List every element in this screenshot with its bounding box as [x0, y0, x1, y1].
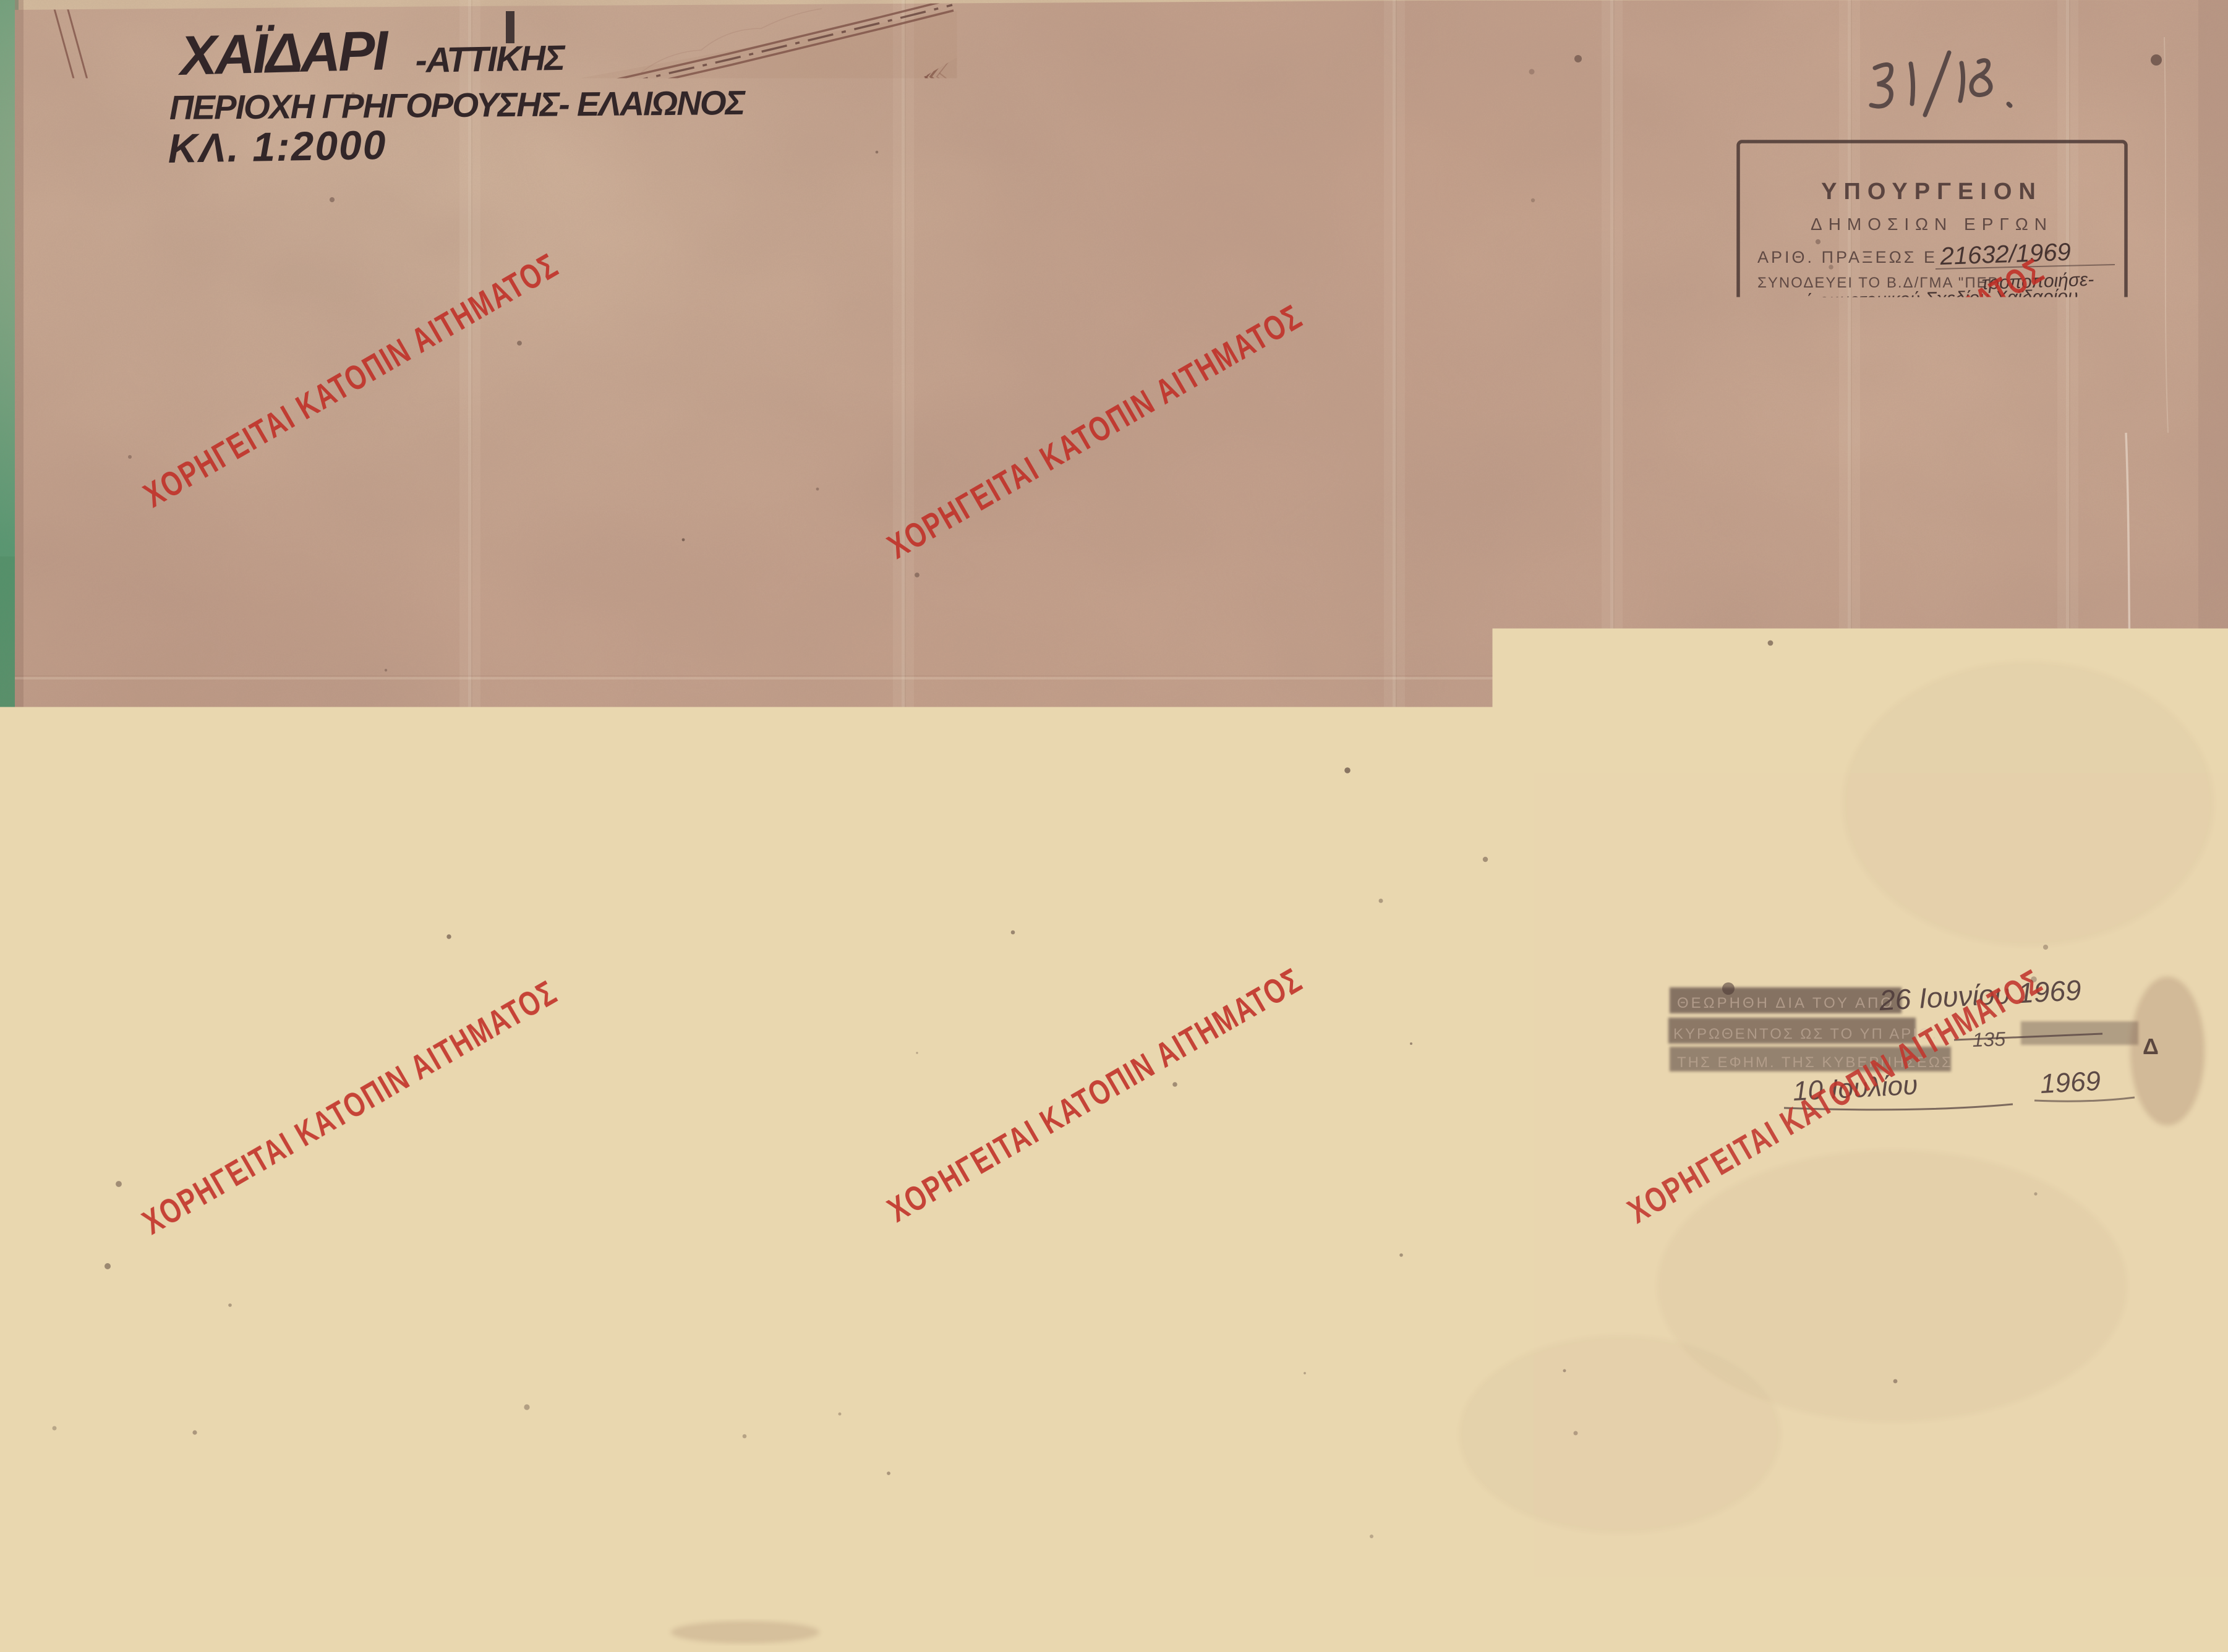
svg-text:ΔΗΜΟΣΙΩΝ ΕΡΓΩΝ: ΔΗΜΟΣΙΩΝ ΕΡΓΩΝ — [1811, 215, 2053, 234]
svg-text:283: 283 — [1146, 676, 1177, 699]
svg-text:88: 88 — [139, 1306, 164, 1332]
svg-text:93: 93 — [117, 1122, 143, 1147]
svg-text:96: 96 — [250, 963, 276, 989]
svg-text:95: 95 — [381, 1028, 407, 1054]
svg-text:-ΑΤΤΙΚΗΣ: -ΑΤΤΙΚΗΣ — [415, 38, 566, 80]
svg-text:Χωματερή: Χωματερή — [1608, 338, 1702, 357]
svg-text:87: 87 — [200, 1440, 227, 1466]
svg-text:99: 99 — [102, 871, 128, 897]
svg-text:II: II — [1158, 66, 1193, 138]
svg-text:ΠΕΡΙΟΧΗ ΓΡΗΓΟΡΟΥΣΗΣ- ΕΛΑΙΩΝΟΣ: ΠΕΡΙΟΧΗ ΓΡΗΓΟΡΟΥΣΗΣ- ΕΛΑΙΩΝΟΣ — [169, 83, 746, 127]
svg-text:(Αττικής): (Αττικής) — [1757, 311, 1824, 330]
svg-text:90: 90 — [733, 1451, 745, 1463]
svg-text:283: 283 — [1264, 668, 1295, 690]
svg-text:98: 98 — [96, 1062, 122, 1088]
svg-text:I: I — [386, 1191, 404, 1263]
svg-text:I: I — [626, 384, 645, 460]
svg-text:ΚΛ. 1:2000: ΚΛ. 1:2000 — [168, 122, 387, 171]
svg-text:Α: Α — [1276, 690, 1287, 705]
svg-text:II: II — [696, 1332, 730, 1402]
svg-text:II: II — [1221, 1343, 1256, 1412]
svg-text:ΥΠΟΥΡΓΕΙΟΝ: ΥΠΟΥΡΓΕΙΟΝ — [1821, 179, 2042, 205]
svg-text:ΧΑΪΔΑΡΙ: ΧΑΪΔΑΡΙ — [176, 20, 390, 87]
svg-text:I: I — [291, 647, 310, 726]
svg-text:90: 90 — [698, 1313, 711, 1326]
svg-text:ΑΡΙΘ. ΠΡΑΞΕΩΣ Ε: ΑΡΙΘ. ΠΡΑΞΕΩΣ Ε — [1757, 248, 1937, 266]
